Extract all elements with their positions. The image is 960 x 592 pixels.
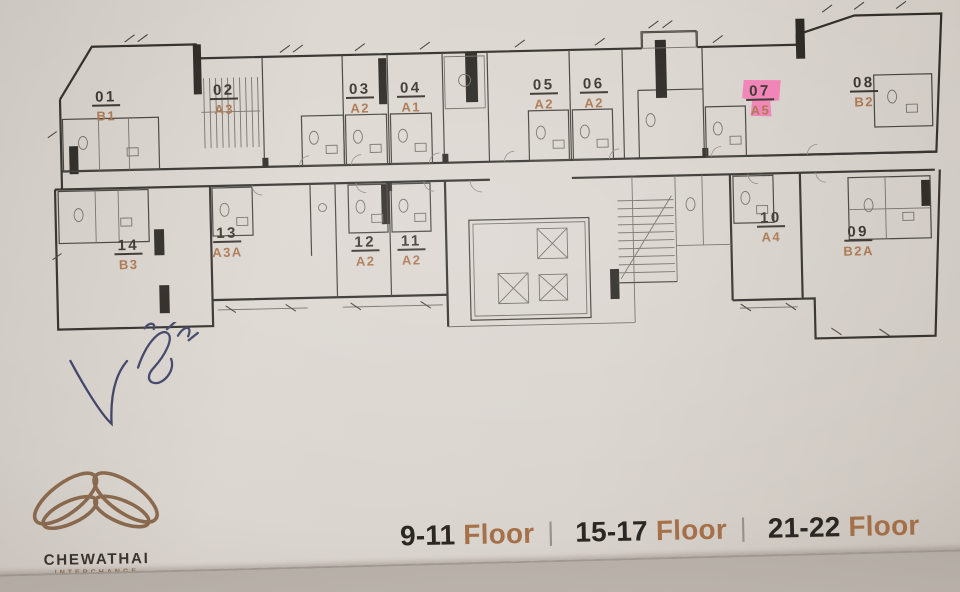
unit-label-14: 14 B3 — [114, 237, 143, 273]
butterfly-logo-icon — [20, 465, 171, 548]
interior-partitions — [55, 26, 936, 260]
unit-label-01: 01 B1 — [92, 88, 121, 124]
floor-range: 9-11 — [400, 519, 456, 551]
unit-label-03: 03 A2 — [346, 80, 375, 116]
unit-type-code: B1 — [96, 108, 116, 123]
corridor — [62, 152, 937, 190]
brand-name: CHEWATHAI — [15, 550, 179, 570]
unit-type-code: B2 — [854, 94, 874, 109]
unit-type-code: A3A — [212, 244, 243, 260]
unit-type-code: A2 — [356, 253, 376, 268]
floor-range: 21-22 — [767, 511, 840, 544]
unit-number: 13 — [216, 225, 238, 242]
unit-type-code: A5 — [750, 102, 770, 117]
unit-number: 05 — [533, 76, 555, 93]
unit-type-code: B2A — [843, 243, 874, 259]
unit-number: 08 — [853, 74, 875, 91]
unit-number: 04 — [400, 79, 422, 96]
unit-number: 12 — [354, 233, 376, 250]
elevator-shaft — [498, 273, 529, 304]
unit-label-07: 07 A5 — [742, 79, 782, 118]
unit-number: 09 — [847, 223, 869, 240]
unit-number: 10 — [760, 209, 782, 226]
unit-label-06: 06 A2 — [580, 75, 609, 111]
unit-label-02: 02 A3 — [210, 81, 239, 117]
unit-label-12: 12 A2 — [351, 233, 380, 269]
unit-number: 11 — [401, 232, 422, 249]
separator: | — [547, 516, 555, 546]
floor-range: 15-17 — [575, 515, 648, 548]
handwritten-signature — [56, 322, 236, 457]
unit-number: 02 — [213, 82, 235, 99]
balcony-ticks — [45, 1, 913, 354]
unit-number: 14 — [117, 237, 139, 254]
unit-number: 07 — [749, 82, 771, 99]
stairwell-right — [615, 196, 677, 283]
unit-labels: 01 B1 02 A3 03 A2 04 A1 05 — [92, 67, 882, 276]
unit-label-09: 09 B2A — [843, 223, 874, 259]
floor-range-item: 21-22Floor — [759, 510, 919, 544]
building-outline — [51, 13, 948, 355]
unit-type-code: A4 — [761, 229, 781, 244]
unit-type-code: A2 — [584, 95, 604, 110]
elevator-shaft — [537, 228, 568, 259]
floor-plan-photo: 01 B1 02 A3 03 A2 04 A1 05 — [0, 0, 960, 592]
elevator-core — [469, 218, 591, 321]
floor-word: Floor — [848, 510, 920, 542]
unit-label-13: 13 A3A — [212, 224, 243, 260]
floor-word: Floor — [656, 514, 728, 546]
separator: | — [740, 512, 748, 542]
unit-label-05: 05 A2 — [530, 76, 559, 112]
unit-number: 01 — [95, 88, 117, 105]
unit-number: 06 — [583, 75, 605, 92]
service-shaft — [444, 56, 485, 109]
unit-type-code: A2 — [534, 96, 554, 111]
unit-label-04: 04 A1 — [397, 79, 426, 115]
unit-type-code: B3 — [119, 257, 139, 272]
floor-word: Floor — [463, 518, 535, 550]
brand-logo: CHEWATHAI INTERCHANGE — [13, 465, 179, 578]
floor-range-item: 15-17Floor — [567, 514, 727, 548]
unit-label-11: 11 A2 — [397, 232, 426, 268]
unit-type-code: A2 — [350, 100, 370, 115]
floor-availability: 9-11Floor| 15-17Floor| 21-22Floor — [400, 509, 920, 553]
elevator-shaft — [539, 274, 568, 301]
unit-label-08: 08 B2 — [850, 74, 879, 110]
unit-type-code: A2 — [402, 252, 422, 267]
floor-range-item: 9-11Floor — [400, 518, 535, 552]
unit-number: 03 — [349, 80, 371, 97]
unit-type-code: A1 — [401, 99, 421, 114]
unit-type-code: A3 — [214, 102, 234, 117]
unit-label-10: 10 A4 — [757, 209, 786, 245]
